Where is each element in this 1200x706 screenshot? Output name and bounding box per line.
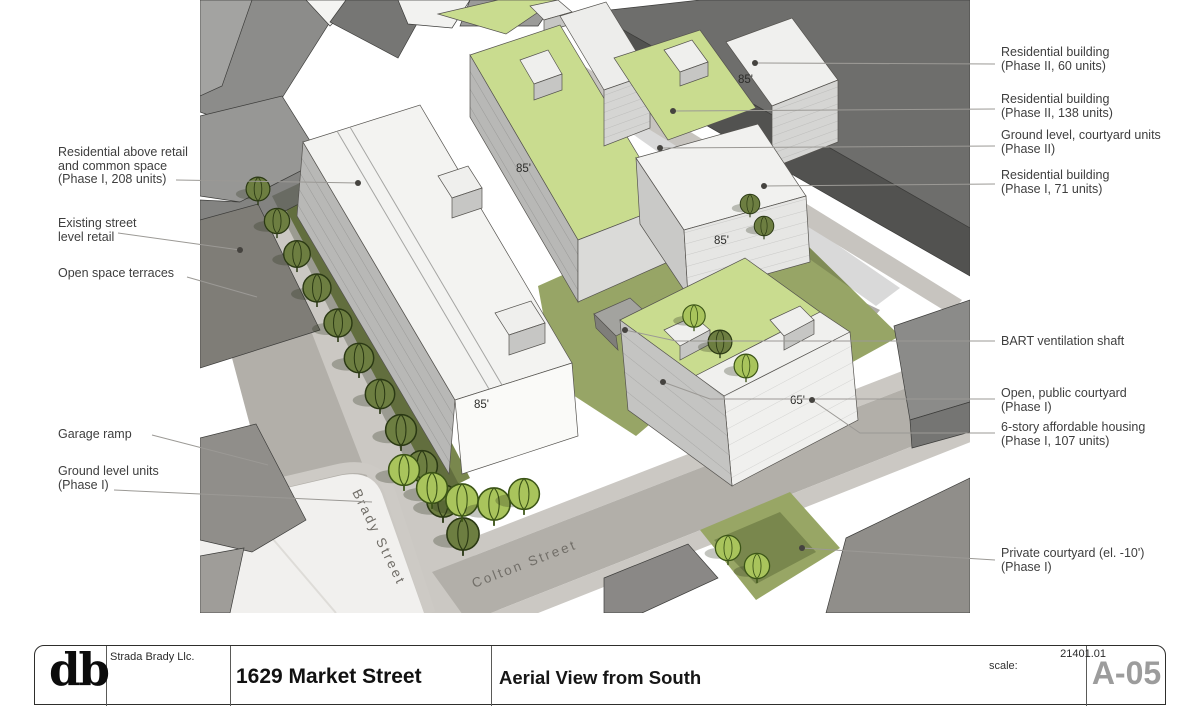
callout-existing-retail: Existing streetlevel retail (58, 217, 218, 244)
callout-residential-above-retail: Residential above retailand common space… (58, 146, 218, 187)
height-label-85-a: 85' (474, 399, 489, 411)
titleblock: db Strada Brady Llc. 1629 Market Street … (34, 645, 1166, 705)
architect-logo: db (49, 643, 108, 696)
callout-residential-60: Residential building(Phase II, 60 units) (1001, 46, 1186, 73)
callout-residential-71: Residential building(Phase I, 71 units) (1001, 169, 1186, 196)
titleblock-divider (491, 646, 492, 706)
callout-affordable-housing: 6-story affordable housing(Phase I, 107 … (1001, 421, 1186, 448)
sheet-title: Aerial View from South (499, 667, 701, 689)
height-label-85-b: 85' (516, 163, 531, 175)
callout-private-courtyard: Private courtyard (el. -10')(Phase I) (1001, 547, 1186, 574)
titleblock-divider (230, 646, 231, 706)
height-label-85-c: 85' (738, 74, 753, 86)
callout-garage-ramp: Garage ramp (58, 428, 218, 442)
callout-residential-138: Residential building(Phase II, 138 units… (1001, 93, 1186, 120)
project-title: 1629 Market Street (236, 665, 422, 689)
scale-label: scale: (989, 660, 1018, 672)
client-name: Strada Brady Llc. (110, 651, 194, 663)
site-model: Brady Street Colton Street 85' 85' 85' 8… (200, 0, 1006, 630)
callout-bart-vent: BART ventilation shaft (1001, 335, 1186, 349)
callout-open-space-terraces: Open space terraces (58, 267, 218, 281)
callout-ground-level-units: Ground level units(Phase I) (58, 465, 218, 492)
callout-ground-courtyard-units: Ground level, courtyard units(Phase II) (1001, 129, 1186, 156)
height-label-85-d: 85' (714, 235, 729, 247)
height-label-65-e: 65' (790, 395, 805, 407)
callout-public-courtyard: Open, public courtyard(Phase I) (1001, 387, 1186, 414)
